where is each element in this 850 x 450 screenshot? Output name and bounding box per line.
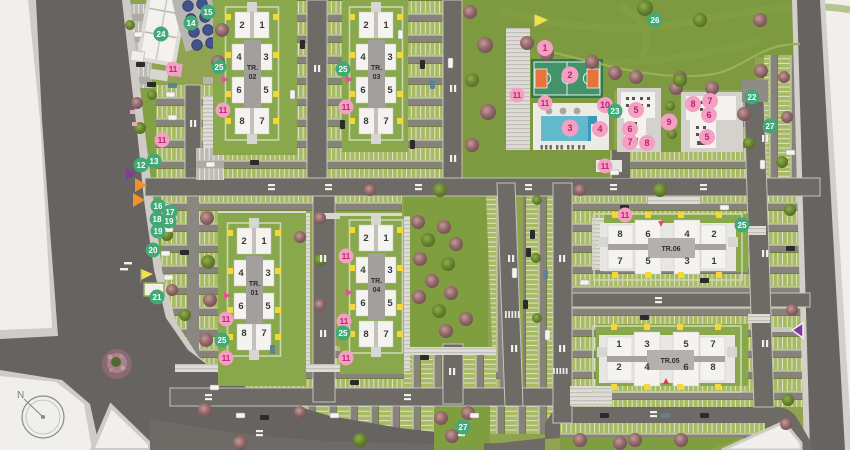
svg-text:27: 27 [766,122,775,131]
svg-text:1: 1 [383,20,389,31]
svg-text:4: 4 [360,52,366,63]
svg-text:4: 4 [597,124,602,134]
svg-text:6: 6 [627,124,632,134]
svg-text:1: 1 [259,20,265,31]
svg-text:20: 20 [149,246,158,255]
svg-text:7: 7 [259,116,264,127]
svg-text:11: 11 [169,65,178,74]
svg-text:5: 5 [633,105,638,115]
svg-text:5: 5 [387,85,393,96]
svg-text:9: 9 [666,117,671,127]
svg-text:TR.: TR. [249,281,260,288]
svg-text:5: 5 [263,85,269,96]
svg-text:3: 3 [265,268,270,279]
svg-text:27: 27 [459,423,468,432]
svg-text:12: 12 [137,161,146,170]
svg-text:11: 11 [513,91,522,100]
svg-text:TR.05: TR.05 [660,358,679,365]
svg-text:1: 1 [616,339,622,350]
svg-text:19: 19 [154,227,163,236]
svg-text:7: 7 [617,256,622,267]
svg-text:1: 1 [261,236,267,247]
svg-text:18: 18 [153,215,162,224]
svg-text:3: 3 [644,339,649,350]
svg-text:3: 3 [263,52,268,63]
svg-text:2: 2 [363,20,368,31]
svg-text:25: 25 [738,221,747,230]
svg-text:01: 01 [251,290,259,297]
svg-text:25: 25 [339,65,348,74]
svg-text:2: 2 [363,233,368,244]
svg-text:11: 11 [342,103,351,112]
svg-text:6: 6 [706,110,711,120]
svg-text:7: 7 [710,339,715,350]
svg-text:3: 3 [567,123,572,133]
svg-text:7: 7 [707,96,712,106]
svg-text:2: 2 [567,70,572,80]
svg-text:N: N [17,390,24,401]
svg-text:1: 1 [711,256,717,267]
svg-text:26: 26 [651,16,660,25]
svg-text:4: 4 [684,229,690,240]
svg-text:11: 11 [158,136,167,145]
svg-text:4: 4 [644,362,650,373]
svg-text:8: 8 [644,138,649,148]
svg-text:17: 17 [166,208,175,217]
svg-text:16: 16 [154,202,163,211]
svg-text:5: 5 [704,132,709,142]
svg-text:2: 2 [241,236,246,247]
svg-text:6: 6 [238,301,243,312]
svg-text:1: 1 [542,43,547,53]
svg-text:11: 11 [222,315,231,324]
svg-text:3: 3 [684,256,689,267]
svg-text:8: 8 [241,328,246,339]
svg-text:2: 2 [616,362,621,373]
svg-text:5: 5 [265,301,271,312]
svg-text:19: 19 [165,217,174,226]
svg-text:TR.: TR. [371,278,382,285]
svg-text:21: 21 [153,293,162,302]
svg-text:5: 5 [645,256,651,267]
svg-text:3: 3 [387,265,392,276]
svg-text:5: 5 [387,298,393,309]
svg-text:3: 3 [387,52,392,63]
svg-text:8: 8 [239,116,244,127]
svg-text:15: 15 [204,8,213,17]
svg-text:11: 11 [601,162,610,171]
svg-text:6: 6 [360,85,365,96]
svg-text:7: 7 [627,137,632,147]
svg-text:11: 11 [222,354,231,363]
svg-text:25: 25 [218,336,227,345]
svg-text:6: 6 [683,362,688,373]
svg-text:02: 02 [249,74,257,81]
svg-text:7: 7 [383,329,388,340]
svg-text:8: 8 [710,362,715,373]
svg-text:03: 03 [373,74,381,81]
svg-text:25: 25 [339,329,348,338]
svg-text:04: 04 [373,287,381,294]
svg-text:2: 2 [711,229,716,240]
svg-text:11: 11 [342,354,351,363]
svg-text:8: 8 [363,116,368,127]
svg-text:6: 6 [360,298,365,309]
svg-text:7: 7 [383,116,388,127]
svg-text:1: 1 [383,233,389,244]
svg-text:11: 11 [219,106,228,115]
svg-text:8: 8 [617,229,622,240]
svg-text:8: 8 [690,99,695,109]
svg-text:11: 11 [541,99,550,108]
svg-text:22: 22 [748,93,757,102]
svg-text:14: 14 [187,19,196,28]
svg-text:8: 8 [363,329,368,340]
svg-text:13: 13 [150,157,159,166]
svg-text:TR.06: TR.06 [661,246,680,253]
svg-text:6: 6 [645,229,650,240]
svg-text:23: 23 [611,107,620,116]
svg-text:11: 11 [340,317,349,326]
svg-text:25: 25 [215,63,224,72]
svg-text:4: 4 [360,265,366,276]
svg-text:11: 11 [621,211,630,220]
svg-text:4: 4 [238,268,244,279]
svg-text:7: 7 [261,328,266,339]
svg-text:24: 24 [157,30,166,39]
svg-text:11: 11 [342,252,351,261]
svg-text:6: 6 [236,85,241,96]
svg-text:5: 5 [683,339,689,350]
svg-text:TR.: TR. [247,65,258,72]
svg-text:TR.: TR. [371,65,382,72]
svg-text:4: 4 [236,52,242,63]
svg-text:2: 2 [239,20,244,31]
